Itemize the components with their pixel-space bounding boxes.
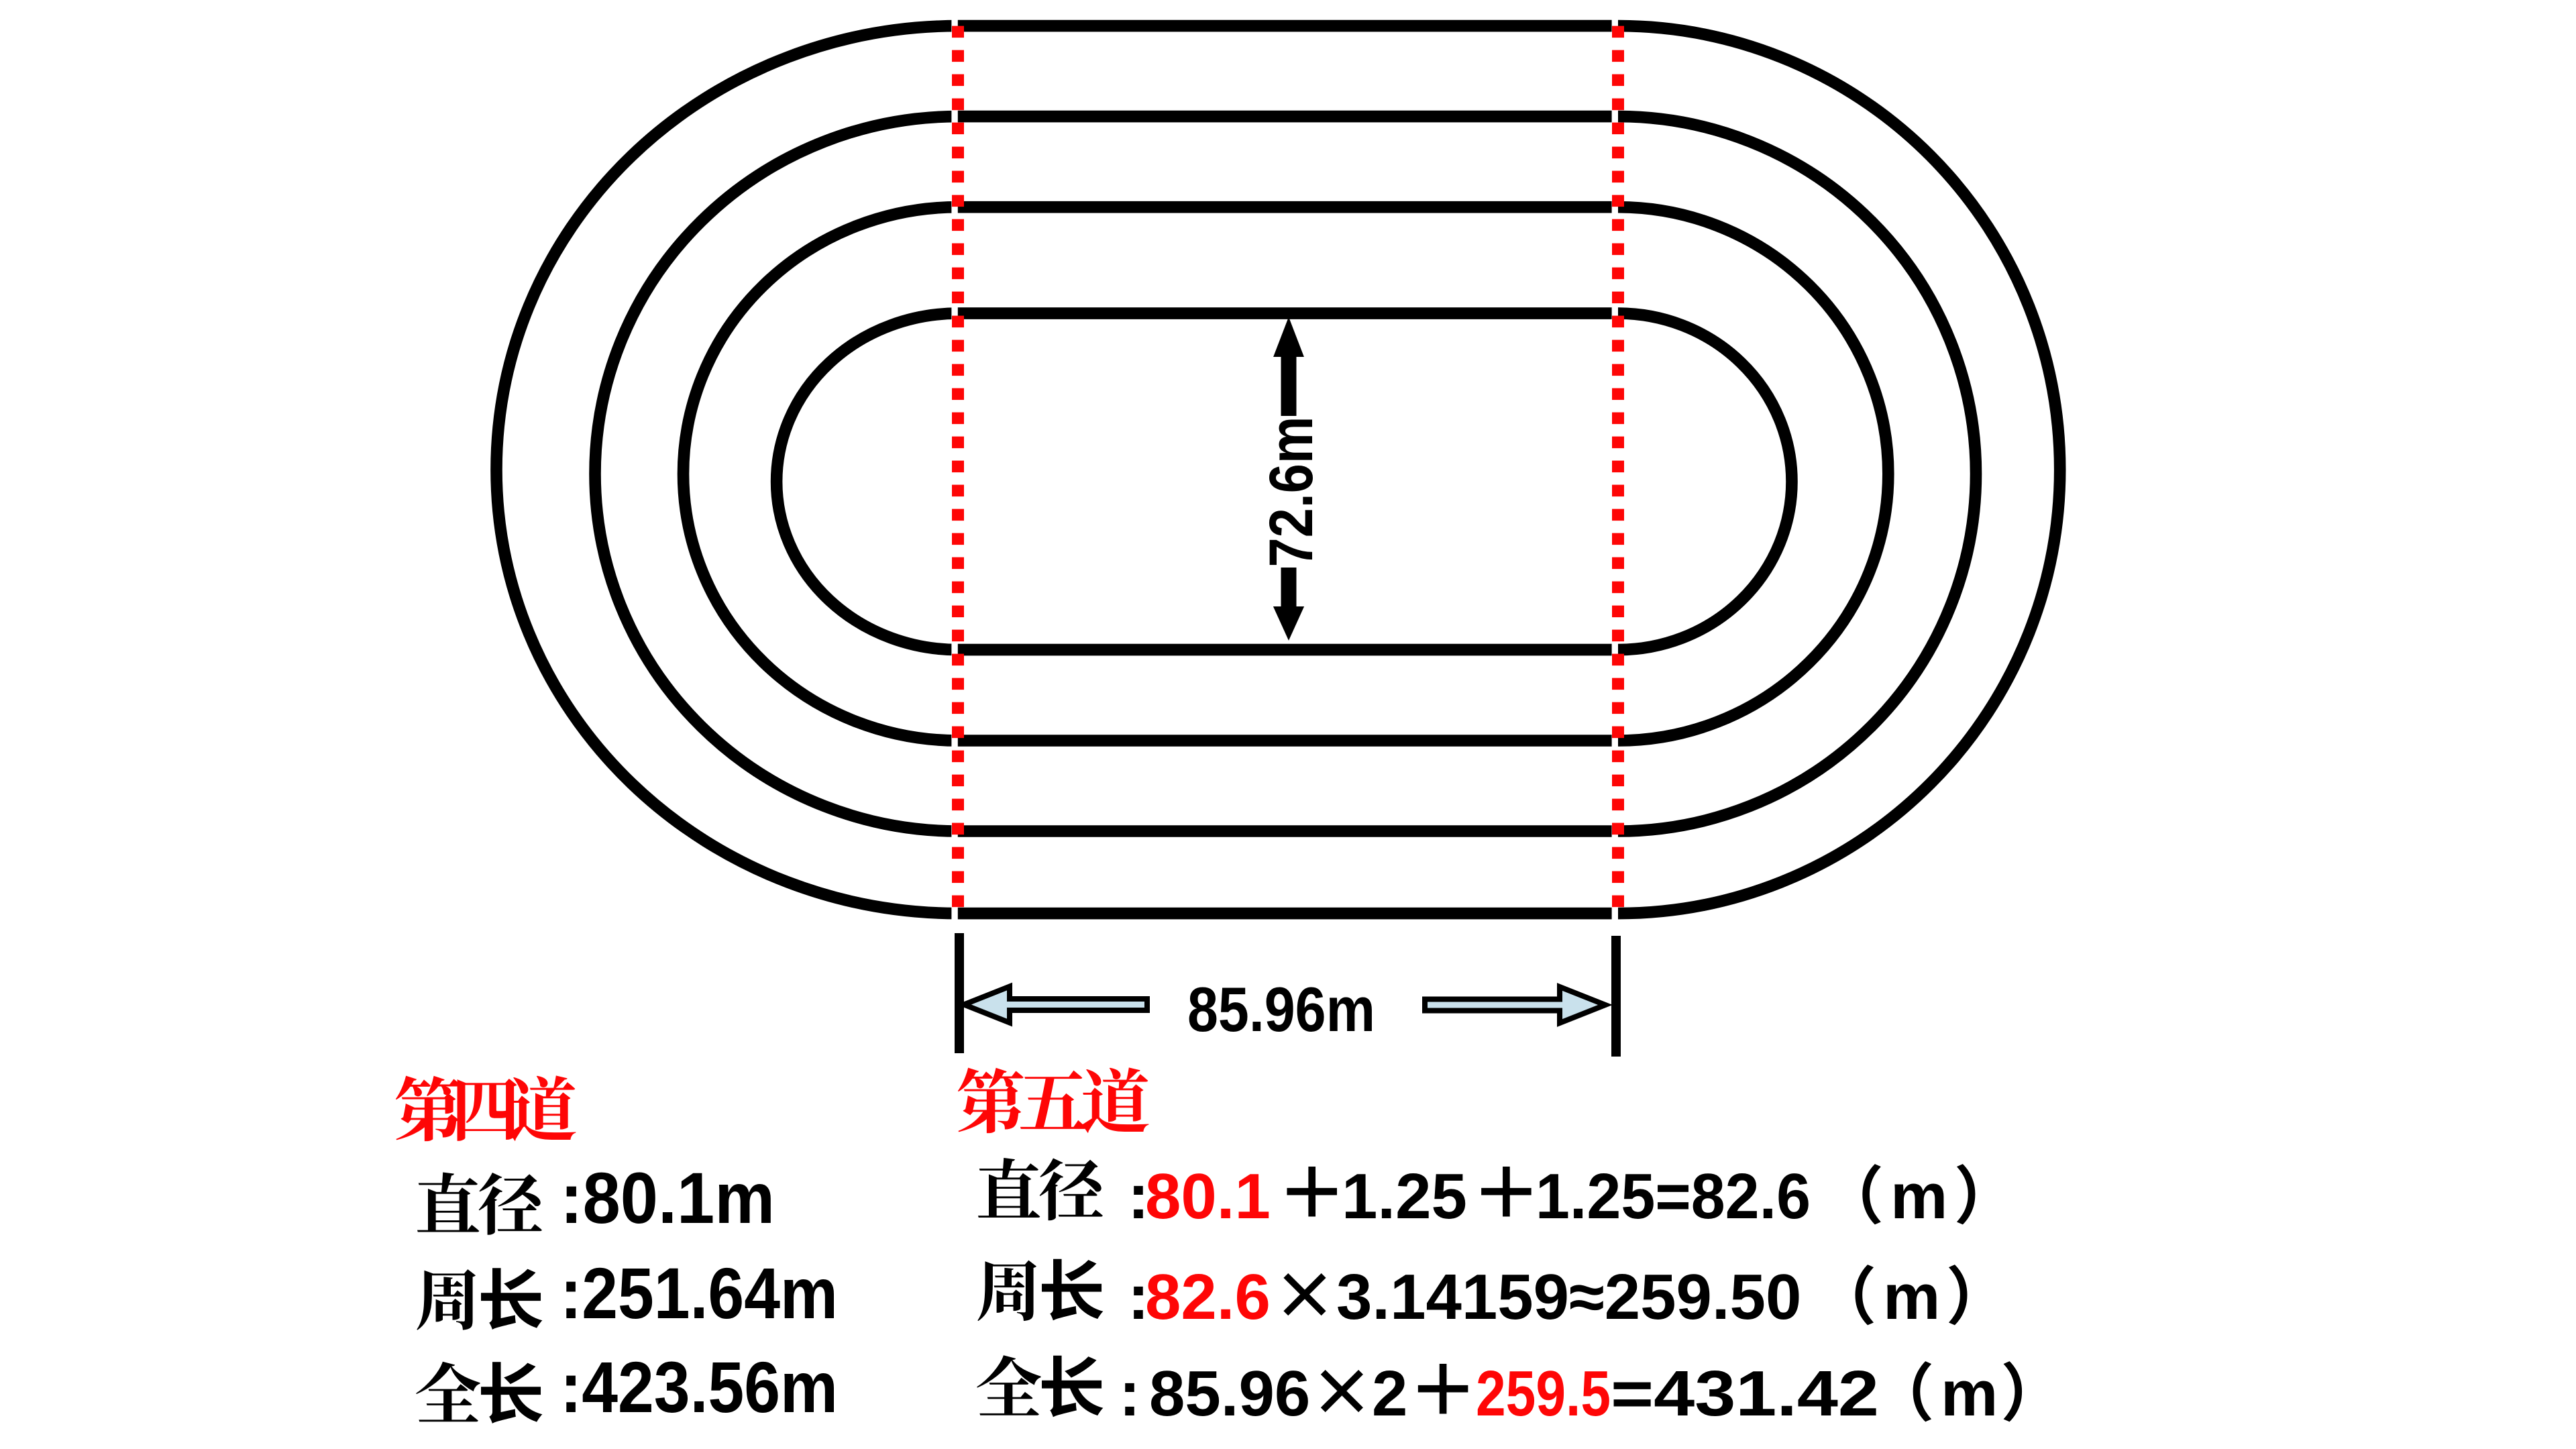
svg-text:72.6m: 72.6m — [1257, 417, 1326, 568]
svg-text:259.5: 259.5 — [1476, 1358, 1611, 1430]
svg-text::: : — [1119, 1358, 1140, 1430]
svg-text:m: m — [1890, 1161, 1947, 1232]
svg-text:m: m — [1883, 1261, 1940, 1333]
svg-text::251.64m: :251.64m — [560, 1252, 838, 1334]
svg-text:2: 2 — [1372, 1358, 1407, 1430]
svg-text:=431.42: =431.42 — [1611, 1358, 1879, 1430]
svg-text:m: m — [1941, 1358, 1998, 1430]
svg-text:3.14159≈259.50: 3.14159≈259.50 — [1336, 1261, 1801, 1333]
svg-text:82.6: 82.6 — [1145, 1261, 1271, 1333]
svg-text:1.25: 1.25 — [1342, 1161, 1467, 1232]
svg-text::80.1m: :80.1m — [560, 1157, 775, 1238]
svg-text:1.25=82.6: 1.25=82.6 — [1536, 1161, 1811, 1232]
svg-text:85.96m: 85.96m — [1187, 974, 1375, 1044]
svg-text::423.56m: :423.56m — [560, 1346, 838, 1428]
svg-text:85.96: 85.96 — [1149, 1358, 1310, 1430]
svg-text:80.1: 80.1 — [1145, 1161, 1271, 1232]
